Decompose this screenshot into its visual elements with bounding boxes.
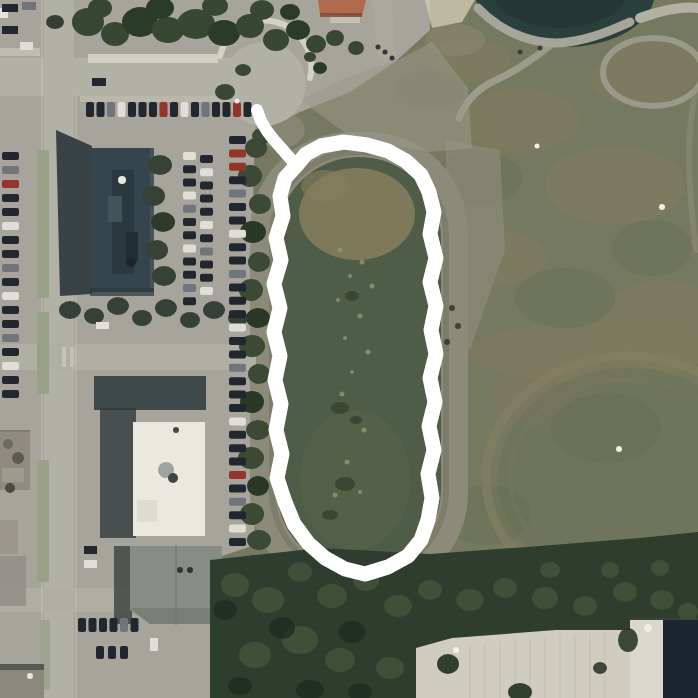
parking-median: [37, 150, 49, 298]
car-row-top: [170, 102, 178, 117]
car-column-center-b: [200, 234, 213, 242]
trees-shape: [221, 573, 249, 597]
car-column-left-edge: [2, 292, 19, 300]
car: [20, 42, 33, 50]
car-column-right: [229, 498, 246, 506]
car-column-left-edge: [2, 180, 19, 188]
trees-shape: [248, 252, 270, 272]
car-column-center-b: [200, 208, 213, 216]
car-column-right: [229, 417, 246, 425]
trees-shape: [306, 35, 326, 53]
buildings-shape: [320, 13, 362, 17]
buildings-shape: [5, 483, 15, 493]
car-column-right: [229, 190, 246, 198]
car-row-top: [160, 102, 168, 117]
oval-mound-shape: [331, 402, 349, 414]
aerial-screenshot: [0, 0, 698, 698]
oval-mound-shape: [345, 291, 359, 301]
pedestrian: [383, 50, 388, 55]
oval-mound-shape: [350, 370, 354, 374]
car-column-left-edge: [2, 320, 19, 328]
car-column-center-a: [183, 192, 196, 200]
trees-shape: [651, 560, 669, 576]
trees-shape: [59, 301, 81, 319]
car-column-center-a: [183, 178, 196, 186]
trees-shape: [338, 621, 366, 643]
trees-shape: [252, 587, 284, 613]
car: [84, 546, 97, 554]
trees-shape: [239, 642, 271, 668]
trees-shape: [269, 617, 295, 639]
park-field-shape: [545, 145, 685, 225]
car-row-top: [97, 102, 105, 117]
trees-shape: [148, 155, 172, 175]
park-field-shape: [515, 268, 615, 328]
white-speck: [453, 647, 459, 653]
oval-mound-shape: [333, 493, 338, 498]
roof-vent: [118, 176, 126, 184]
oval-mound-shape: [360, 260, 365, 265]
car-column-right: [229, 350, 246, 358]
car-row-top: [181, 102, 189, 117]
building-shadow: [100, 408, 136, 538]
car-column-right: [229, 216, 246, 224]
car-column-center-a: [183, 297, 196, 305]
buildings-shape: [330, 17, 360, 23]
car-column-left-edge: [2, 194, 19, 202]
oval-mound-shape: [449, 305, 455, 311]
car-column-right: [229, 377, 246, 385]
car-row-top: [139, 102, 147, 117]
car-column-left-edge: [2, 348, 19, 356]
car-column-right: [229, 297, 246, 305]
oval-mound-shape: [362, 428, 367, 433]
car-column-left-edge: [2, 390, 19, 398]
trees-shape: [250, 0, 274, 20]
car-column-left-edge: [2, 278, 19, 286]
car-row-bottom-left: [120, 618, 128, 632]
car: [150, 638, 158, 651]
trees-shape: [146, 240, 168, 260]
car-column-center-a: [183, 231, 196, 239]
car-row-bottom-left: [110, 618, 118, 632]
trees-shape: [418, 580, 442, 600]
trees-shape: [249, 194, 271, 214]
park-field-shape: [460, 88, 580, 152]
white-speck: [659, 204, 665, 210]
car-column-center-a: [183, 271, 196, 279]
car-column-right: [229, 176, 246, 184]
trees-shape: [601, 562, 619, 578]
small-structure: [0, 556, 26, 606]
roads-shape: [88, 54, 218, 63]
buildings-shape: [12, 452, 24, 464]
bottom-lot-and-building-shape: [618, 628, 638, 652]
car-column-left-edge: [2, 250, 19, 258]
car: [22, 2, 36, 10]
bottom-lot-and-building-shape: [644, 624, 652, 632]
roads-shape: [80, 96, 230, 102]
oval-mound-shape: [343, 336, 347, 340]
trees-shape: [246, 420, 270, 440]
car: [96, 322, 109, 329]
park-field-shape: [612, 220, 692, 276]
car-row-top: [107, 102, 115, 117]
trees-shape: [228, 677, 252, 695]
trees-shape: [143, 186, 165, 206]
car-row-bottom-left: [131, 618, 139, 632]
lot-tree: [437, 654, 459, 674]
trees-shape: [151, 212, 175, 232]
trees-shape: [348, 41, 364, 55]
trees-shape: [180, 312, 200, 328]
oval-mound-shape: [335, 477, 355, 491]
pedestrian: [390, 56, 395, 61]
oval-mound-shape: [350, 416, 362, 424]
car-column-left-edge: [2, 264, 19, 272]
car-column-left-edge: [2, 306, 19, 314]
buildings-shape: [173, 427, 179, 433]
car-column-center-b: [200, 274, 213, 282]
buildings-shape: [168, 473, 178, 483]
pedestrian: [376, 45, 381, 50]
white-speck: [616, 446, 622, 452]
buildings-shape: [126, 257, 136, 267]
car-column-right: [229, 404, 246, 412]
oval-mound-shape: [358, 490, 362, 494]
oval-mound-shape: [336, 298, 340, 302]
car-column-right: [229, 538, 246, 546]
trees-shape: [532, 587, 558, 609]
trees-shape: [573, 596, 597, 616]
building-shadow: [94, 376, 206, 410]
trees-shape: [203, 301, 225, 319]
car-row-bottom-left-2: [96, 646, 104, 659]
car-row-top: [202, 102, 210, 117]
car-column-right: [229, 270, 246, 278]
car-column-left-edge: [2, 334, 19, 342]
car-column-right: [229, 337, 246, 345]
trees-shape: [456, 589, 484, 611]
buildings-shape: [137, 500, 157, 522]
trees-shape: [208, 20, 240, 46]
car-row-top: [223, 102, 231, 117]
trees-shape: [650, 590, 674, 610]
car-column-left-edge: [2, 166, 19, 174]
car-column-center-a: [183, 218, 196, 226]
car-row-bottom-left: [89, 618, 97, 632]
buildings-shape: [2, 468, 24, 482]
car-column-center-a: [183, 165, 196, 173]
trees-shape: [247, 476, 269, 496]
trees-shape: [286, 20, 310, 40]
pedestrian: [538, 46, 543, 51]
trees-shape: [84, 308, 104, 324]
trees-shape: [152, 266, 176, 286]
car-column-center-b: [200, 287, 213, 295]
aerial-photo-svg: [0, 0, 698, 698]
car-column-center-a: [183, 244, 196, 252]
car-column-left-edge: [2, 222, 19, 230]
oval-mound-shape: [300, 410, 410, 550]
trees-shape: [247, 530, 271, 550]
pedestrian: [518, 50, 523, 55]
car-column-right: [229, 283, 246, 291]
car-column-center-b: [200, 247, 213, 255]
trees-shape: [280, 4, 300, 20]
oval-mound-shape: [366, 350, 371, 355]
oval-mound-shape: [358, 314, 363, 319]
oval-mound-shape: [345, 460, 350, 465]
trees-shape: [304, 52, 316, 62]
car: [2, 4, 18, 12]
car-row-bottom-left: [78, 618, 86, 632]
car-column-left-edge: [2, 152, 19, 160]
car-column-right: [229, 230, 246, 238]
parking-median: [37, 460, 49, 582]
car-column-right: [229, 324, 246, 332]
trees-shape: [493, 578, 517, 598]
trees-shape: [248, 364, 270, 384]
car-column-right: [229, 364, 246, 372]
car-column-right: [229, 136, 246, 144]
street-to-culdesac: [0, 58, 242, 96]
car-column-center-a: [183, 258, 196, 266]
trees-shape: [132, 310, 152, 326]
oval-mound-shape: [348, 274, 352, 278]
bottom-lot-and-building-shape: [593, 662, 607, 674]
car-column-left-edge: [2, 236, 19, 244]
car-column-left-edge: [2, 208, 19, 216]
oval-mound-shape: [322, 510, 338, 520]
parking-median: [37, 312, 49, 394]
building-shadow: [114, 546, 132, 624]
car-column-center-b: [200, 195, 213, 203]
trees-shape: [317, 584, 347, 608]
white-speck: [235, 99, 240, 104]
car-row-top: [191, 102, 199, 117]
car-column-right: [229, 243, 246, 251]
car-column-right: [229, 203, 246, 211]
car-column-center-a: [183, 205, 196, 213]
buildings-shape: [3, 439, 13, 449]
trees-shape: [246, 308, 270, 328]
buildings-shape: [90, 288, 154, 296]
car-column-right: [229, 257, 246, 265]
car-column-right: [229, 310, 246, 318]
buildings-shape: [187, 567, 193, 573]
car: [92, 78, 106, 86]
trees-shape: [46, 15, 64, 29]
small-details-shape: [215, 84, 235, 100]
car-column-right: [229, 511, 246, 519]
oval-mound-shape: [301, 170, 349, 202]
trees-shape: [376, 657, 404, 679]
roads-shape: [70, 347, 74, 367]
car-row-top: [149, 102, 157, 117]
car-column-center-a: [183, 284, 196, 292]
trees-shape: [155, 299, 177, 317]
car-column-right: [229, 458, 246, 466]
car-row-top: [118, 102, 126, 117]
car-column-center-b: [200, 261, 213, 269]
small-details-shape: [235, 64, 251, 76]
car-row-bottom-left: [99, 618, 107, 632]
roads-shape: [62, 347, 66, 367]
oval-mound-shape: [338, 248, 343, 253]
oval-mound-shape: [340, 392, 345, 397]
trees-shape: [263, 29, 289, 51]
car-row-top: [212, 102, 220, 117]
car-column-left-edge: [2, 362, 19, 370]
car-row-top: [244, 102, 252, 117]
car-column-right: [229, 444, 246, 452]
car-column-right: [229, 471, 246, 479]
car-row-top: [128, 102, 136, 117]
oval-mound-shape: [455, 323, 461, 329]
car-row-top: [86, 102, 94, 117]
trees-shape: [384, 595, 412, 617]
car-column-right: [229, 431, 246, 439]
car-column-center-a: [183, 152, 196, 160]
oval-mound-shape: [370, 284, 375, 289]
car-row-top: [233, 102, 241, 117]
trees-shape: [325, 648, 355, 672]
car-row-bottom-left-2: [120, 646, 128, 659]
trees-shape: [540, 562, 560, 578]
trees-shape: [313, 62, 327, 74]
bottom-right-building-dark-roof: [663, 620, 698, 698]
car-column-center-b: [200, 181, 213, 189]
car-column-right: [229, 149, 246, 157]
car-column-right: [229, 163, 246, 171]
car-column-right: [229, 391, 246, 399]
buildings-shape: [108, 196, 122, 222]
car-column-left-edge: [2, 376, 19, 384]
buildings-shape: [0, 520, 18, 554]
car: [84, 560, 97, 568]
aerial-photo-scene: [0, 0, 698, 698]
oval-mound-shape: [444, 339, 450, 345]
car-column-right: [229, 484, 246, 492]
buildings-shape: [177, 567, 183, 573]
white-speck: [535, 144, 540, 149]
car-column-right: [229, 525, 246, 533]
car-row-bottom-left-2: [108, 646, 116, 659]
car: [2, 26, 18, 34]
car-column-center-b: [200, 221, 213, 229]
buildings-shape: [0, 664, 44, 670]
car-column-center-b: [200, 168, 213, 176]
car-column-center-b: [200, 155, 213, 163]
trees-shape: [107, 297, 129, 315]
trees-shape: [613, 582, 637, 602]
trees-shape: [326, 30, 344, 46]
building-shadow: [56, 130, 92, 296]
trees-shape: [288, 562, 312, 582]
trees-shape: [213, 600, 237, 620]
buildings-shape: [27, 673, 33, 679]
